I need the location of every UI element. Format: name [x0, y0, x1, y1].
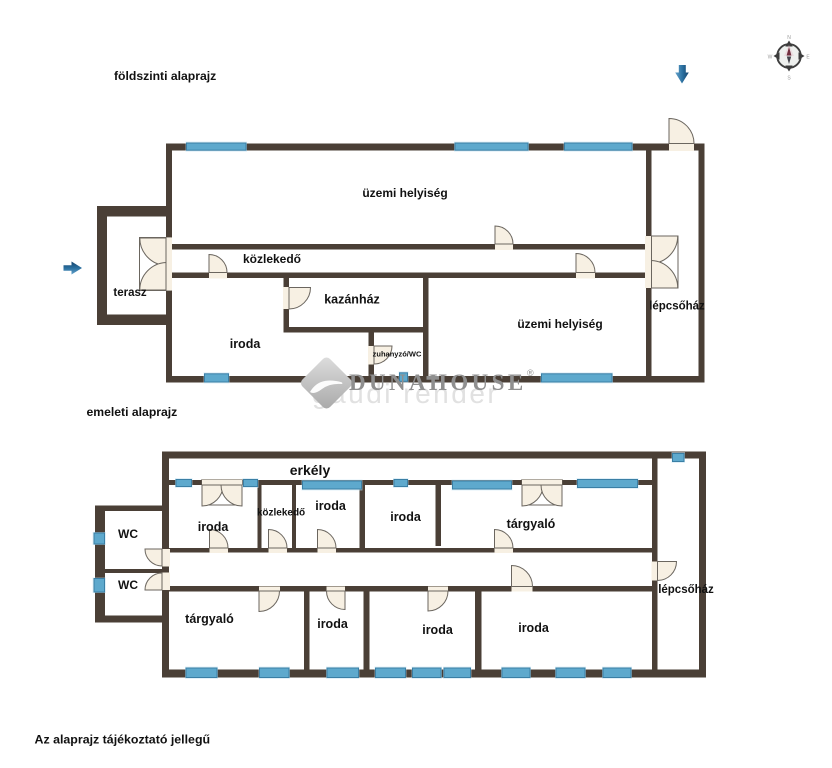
svg-text:terasz: terasz — [113, 287, 146, 299]
svg-text:lépcsőház: lépcsőház — [658, 584, 714, 596]
svg-text:közlekedő: közlekedő — [243, 252, 301, 266]
svg-text:iroda: iroda — [422, 623, 454, 637]
svg-text:lépcsőház: lépcsőház — [649, 301, 705, 313]
svg-text:iroda: iroda — [230, 337, 262, 351]
svg-text:üzemi helyiség: üzemi helyiség — [362, 186, 447, 200]
svg-text:WC: WC — [118, 527, 138, 541]
svg-text:erkély: erkély — [290, 462, 331, 478]
svg-text:tárgyaló: tárgyaló — [185, 612, 234, 626]
svg-text:WC: WC — [118, 578, 138, 592]
svg-text:iroda: iroda — [518, 621, 550, 635]
svg-text:®: ® — [527, 368, 534, 378]
svg-text:iroda: iroda — [198, 520, 230, 534]
svg-text:üzemi helyiség: üzemi helyiség — [517, 317, 602, 331]
svg-text:közlekedő: közlekedő — [257, 508, 305, 519]
svg-text:Az alaprajz tájékoztató jelleg: Az alaprajz tájékoztató jellegű — [35, 733, 211, 747]
svg-text:DUNAHOUSE: DUNAHOUSE — [349, 370, 527, 395]
svg-text:N: N — [787, 35, 791, 41]
svg-text:iroda: iroda — [317, 617, 349, 631]
svg-text:kazánház: kazánház — [324, 293, 380, 307]
svg-text:zuhanyzó/WC: zuhanyzó/WC — [373, 350, 422, 359]
svg-text:iroda: iroda — [390, 510, 422, 524]
svg-text:S: S — [787, 76, 791, 82]
svg-text:E: E — [806, 55, 810, 61]
svg-text:földszinti alaprajz: földszinti alaprajz — [114, 69, 216, 83]
svg-text:tárgyaló: tárgyaló — [507, 517, 556, 531]
svg-text:emeleti alaprajz: emeleti alaprajz — [87, 405, 178, 419]
svg-text:W: W — [768, 55, 773, 61]
svg-text:iroda: iroda — [315, 499, 347, 513]
